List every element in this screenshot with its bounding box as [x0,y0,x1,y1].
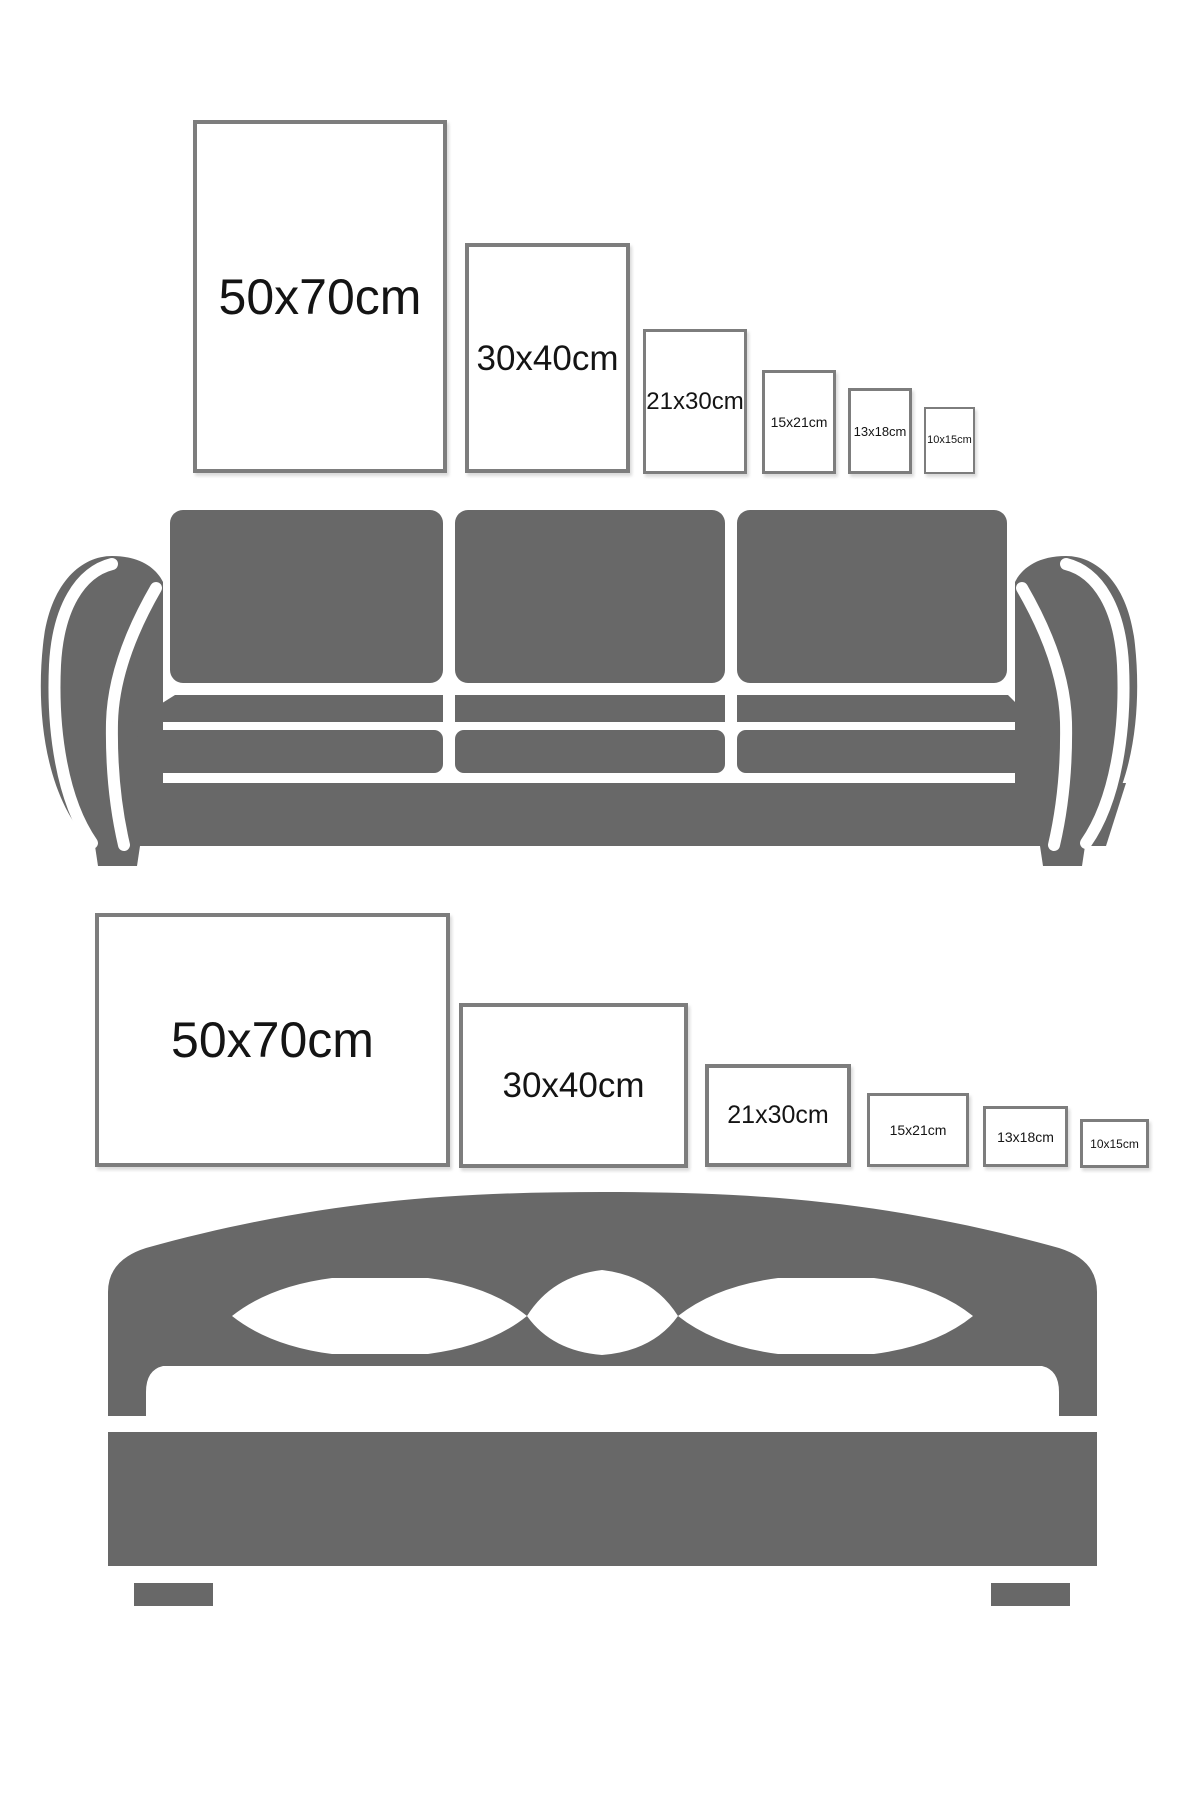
frame-portrait-15x21: 15x21cm [762,370,836,474]
sofa-illustration [41,510,1137,866]
frame-landscape-21x30: 21x30cm [705,1064,851,1167]
sofa-back-cushion-1 [170,510,443,683]
frame-label: 13x18cm [854,425,907,438]
frame-label: 13x18cm [997,1130,1054,1144]
bed-headboard [108,1192,1097,1416]
sofa-back-cushion-2 [455,510,725,683]
frame-landscape-10x15: 10x15cm [1080,1119,1149,1168]
frame-portrait-30x40: 30x40cm [465,243,630,473]
frame-label: 30x40cm [502,1068,644,1103]
frame-label: 30x40cm [476,341,618,376]
bed-base [108,1432,1097,1566]
sofa-seat-cushion-3 [737,730,1041,773]
frame-label: 10x15cm [1090,1138,1139,1150]
sofa-foot-left [95,846,140,866]
frame-portrait-13x18: 13x18cm [848,388,912,474]
frame-label: 10x15cm [927,435,972,446]
sofa-foot-right [1040,846,1085,866]
frame-landscape-30x40: 30x40cm [459,1003,688,1168]
frame-label: 50x70cm [219,272,422,322]
frame-label: 21x30cm [727,1103,828,1128]
size-comparison-diagram: 50x70cm 30x40cm 21x30cm 15x21cm 13x18cm … [0,0,1200,1800]
frame-label: 15x21cm [771,415,828,429]
frame-portrait-21x30: 21x30cm [643,329,747,474]
frame-landscape-13x18: 13x18cm [983,1106,1068,1167]
bed-foot-left [134,1583,213,1606]
frame-label: 50x70cm [171,1015,374,1065]
frame-label: 15x21cm [890,1123,947,1137]
frame-landscape-15x21: 15x21cm [867,1093,969,1167]
frame-portrait-50x70: 50x70cm [193,120,447,473]
frame-label: 21x30cm [646,390,743,414]
sofa-seat-cushion-1 [137,730,443,773]
sofa-seat-cushion-2 [455,730,725,773]
bed-foot-right [991,1583,1070,1606]
sofa-back-cushion-3 [737,510,1007,683]
bed-illustration [108,1192,1097,1606]
sofa-seat-deck [132,695,1035,722]
sofa-base [74,783,1126,846]
frame-portrait-10x15: 10x15cm [924,407,975,474]
frame-landscape-50x70: 50x70cm [95,913,450,1167]
